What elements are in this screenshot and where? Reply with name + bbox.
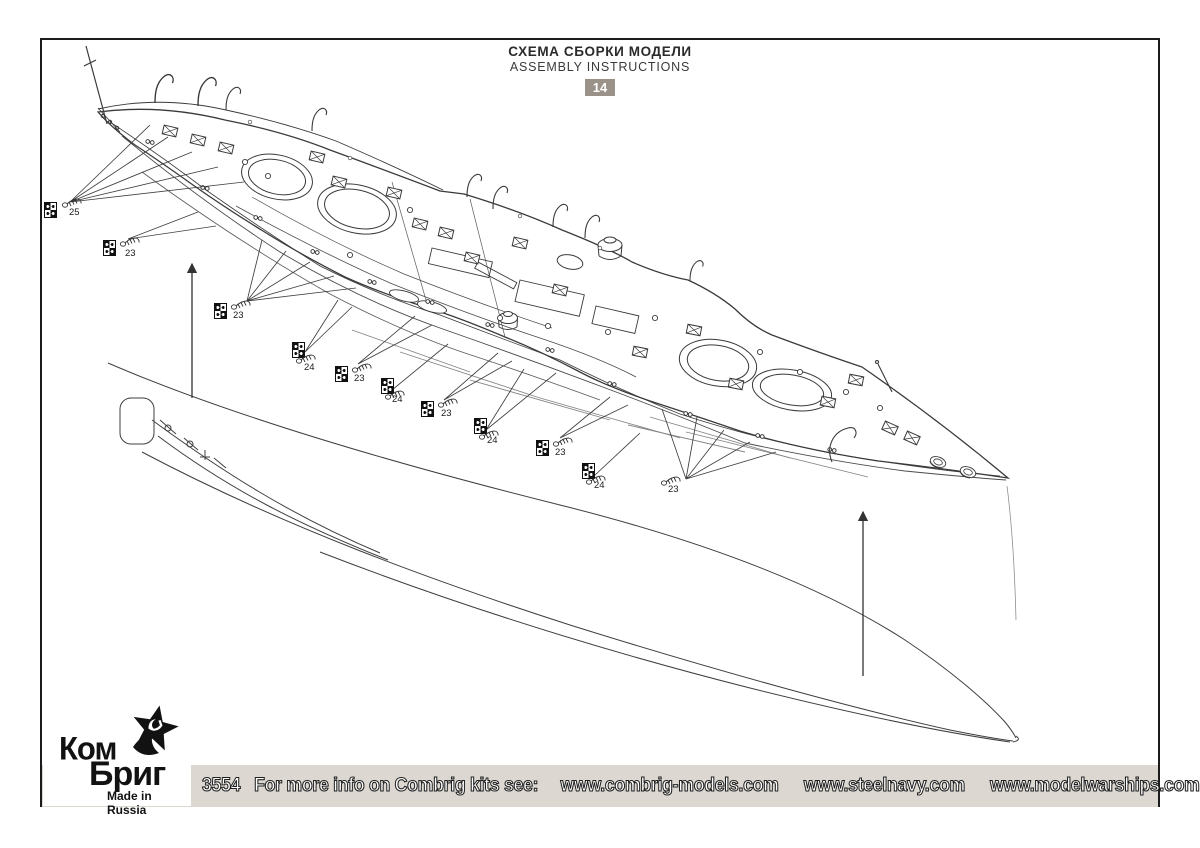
- footer-text: 3554 For more info on Combrig kits see: …: [202, 765, 1200, 807]
- footer-url: www.combrig-models.com: [561, 775, 779, 797]
- brand-logo-box: Ком Бриг Made in Russia: [43, 695, 191, 806]
- part-marker-icon: [44, 202, 57, 218]
- hull-keel-band: [320, 552, 1010, 742]
- footer-urls: www.combrig-models.comwww.steelnavy.comw…: [561, 775, 1200, 797]
- callout-number: 24: [304, 363, 315, 373]
- part-marker-icon: [421, 401, 434, 417]
- part-marker-icon: [335, 366, 348, 382]
- callout-number: 24: [487, 436, 498, 446]
- instruction-sheet: СХЕМА СБОРКИ МОДЕЛИ ASSEMBLY INSTRUCTION…: [0, 0, 1200, 848]
- callout-number: 23: [441, 409, 452, 419]
- callout-number: 23: [668, 485, 679, 495]
- deck-outline: [98, 109, 1008, 478]
- callout-number: 23: [233, 311, 244, 321]
- kit-number: 3554: [202, 775, 240, 797]
- part-marker-icon: [536, 440, 549, 456]
- footer-url: www.modelwarships.com: [990, 775, 1200, 797]
- footer-url: www.steelnavy.com: [804, 775, 965, 797]
- made-in-russia-label: Made in Russia: [107, 789, 191, 817]
- hull-bow-stem: [120, 398, 154, 444]
- hull-keel-line: [142, 452, 1013, 741]
- footer-bar: 3554 For more info on Combrig kits see: …: [42, 765, 1158, 807]
- star-logo-icon: [125, 703, 185, 761]
- part-marker-icon: [103, 240, 116, 256]
- part-marker-icon: [214, 303, 227, 319]
- callout-number: 25: [69, 208, 80, 218]
- callout-number: 23: [354, 374, 365, 384]
- deck-top-view: [84, 46, 1008, 480]
- callout-number: 24: [392, 395, 403, 405]
- callout-number: 23: [555, 448, 566, 458]
- footer-info-text: For more info on Combrig kits see:: [254, 775, 538, 797]
- callout-number: 23: [125, 249, 136, 259]
- part-sketch: [120, 235, 140, 249]
- callout-number: 24: [594, 481, 605, 491]
- stern-profile-line: [1007, 486, 1016, 620]
